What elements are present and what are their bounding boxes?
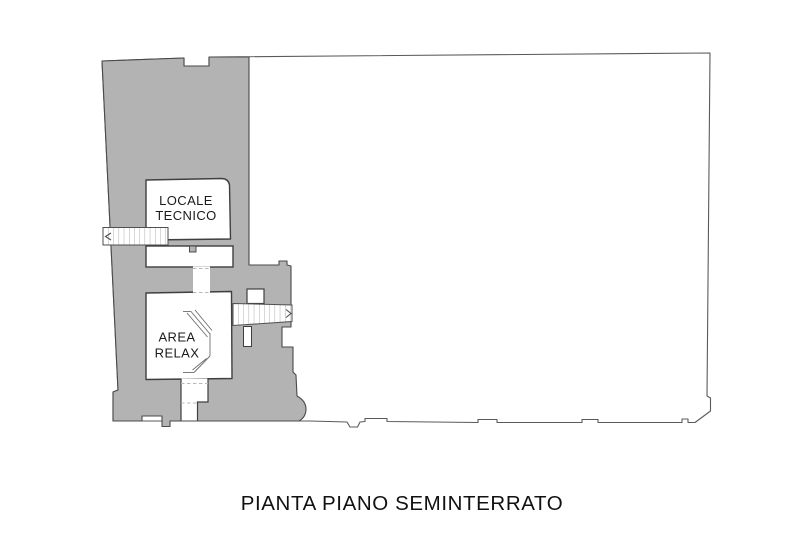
stair-lower-notch (244, 327, 252, 347)
door-opening-upper (193, 267, 210, 295)
stair-landing-notch (247, 289, 264, 304)
floor-plan-page: LOCALE TECNICO AREA RELAX PIANTA PIANO S… (0, 0, 800, 550)
room-label-locale-tecnico-line2: TECNICO (155, 208, 216, 223)
plan-title: PIANTA PIANO SEMINTERRATO (241, 492, 564, 515)
room-label-area-relax-line1: AREA (158, 330, 195, 345)
room-label-area-relax-line2: RELAX (155, 346, 200, 361)
staircase-upper (103, 228, 168, 246)
room-label-locale-tecnico-line1: LOCALE (159, 193, 213, 208)
wall-tick (190, 246, 197, 252)
staircase-lower (233, 304, 292, 326)
floor-plan-canvas: LOCALE TECNICO AREA RELAX PIANTA PIANO S… (0, 0, 800, 550)
